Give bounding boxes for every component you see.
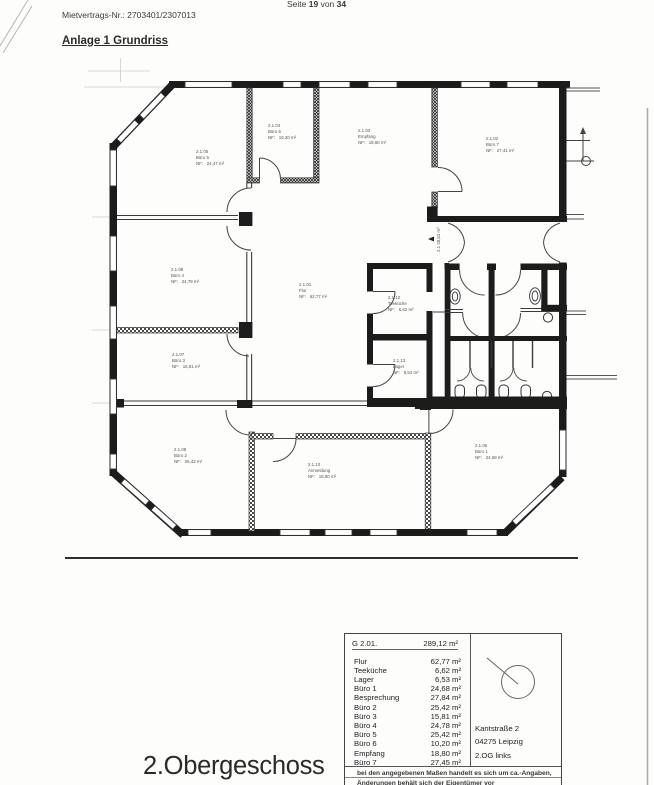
svg-text:2.1.06: 2.1.06: [475, 443, 488, 448]
svg-text:2.1.04: 2.1.04: [268, 123, 281, 128]
svg-text:Büro 2: Büro 2: [174, 453, 187, 458]
svg-text:Teeküche: Teeküche: [388, 301, 407, 306]
svg-text:Lager: Lager: [393, 364, 405, 369]
svg-text:2.1.09: 2.1.09: [174, 447, 187, 452]
svg-text:NF: 24,78 m²: NF: 24,78 m²: [171, 279, 200, 284]
svg-text:NF: 15,81 m²: NF: 15,81 m²: [172, 364, 201, 369]
svg-text:Büro 4: Büro 4: [171, 273, 184, 278]
svg-text:Flur: Flur: [299, 288, 307, 293]
svg-text:Empfang: Empfang: [358, 134, 376, 139]
svg-text:2.1 28,53 m²: 2.1 28,53 m²: [436, 227, 441, 252]
svg-text:NF: 18,80 m²: NF: 18,80 m²: [308, 474, 337, 479]
svg-text:NF: 25,42 m²: NF: 25,42 m²: [174, 459, 203, 464]
svg-text:NF: 24,68 m²: NF: 24,68 m²: [475, 455, 504, 460]
svg-text:2.1.02: 2.1.02: [486, 136, 499, 141]
svg-text:2.1.10: 2.1.10: [308, 462, 321, 467]
svg-text:Büro 1: Büro 1: [475, 449, 488, 454]
svg-text:Büro 5: Büro 5: [196, 155, 209, 160]
svg-text:NF: 62,77 m²: NF: 62,77 m²: [299, 294, 328, 299]
svg-text:NF: 27,41 m²: NF: 27,41 m²: [486, 148, 515, 153]
svg-text:2.1.03: 2.1.03: [358, 128, 371, 133]
svg-text:Anmeldung: Anmeldung: [308, 468, 331, 473]
svg-text:2.1.05: 2.1.05: [196, 149, 209, 154]
svg-text:NF: 18,80 m²: NF: 18,80 m²: [358, 140, 387, 145]
svg-text:Büro 6: Büro 6: [268, 129, 281, 134]
svg-text:2.1.13: 2.1.13: [393, 358, 406, 363]
svg-text:Büro 3: Büro 3: [172, 358, 185, 363]
svg-text:NF: 6,62 m²: NF: 6,62 m²: [388, 307, 414, 312]
svg-text:NF: 10,20 m²: NF: 10,20 m²: [268, 135, 297, 140]
svg-text:2.1.07: 2.1.07: [172, 352, 185, 357]
svg-text:2.1.12: 2.1.12: [388, 295, 401, 300]
svg-text:NF: 24,47 m²: NF: 24,47 m²: [196, 161, 225, 166]
svg-text:2.1.08: 2.1.08: [171, 267, 184, 272]
svg-text:NF: 6,53 m²: NF: 6,53 m²: [393, 370, 419, 375]
svg-text:Büro 7: Büro 7: [486, 142, 499, 147]
svg-text:2.1.01: 2.1.01: [299, 282, 312, 287]
